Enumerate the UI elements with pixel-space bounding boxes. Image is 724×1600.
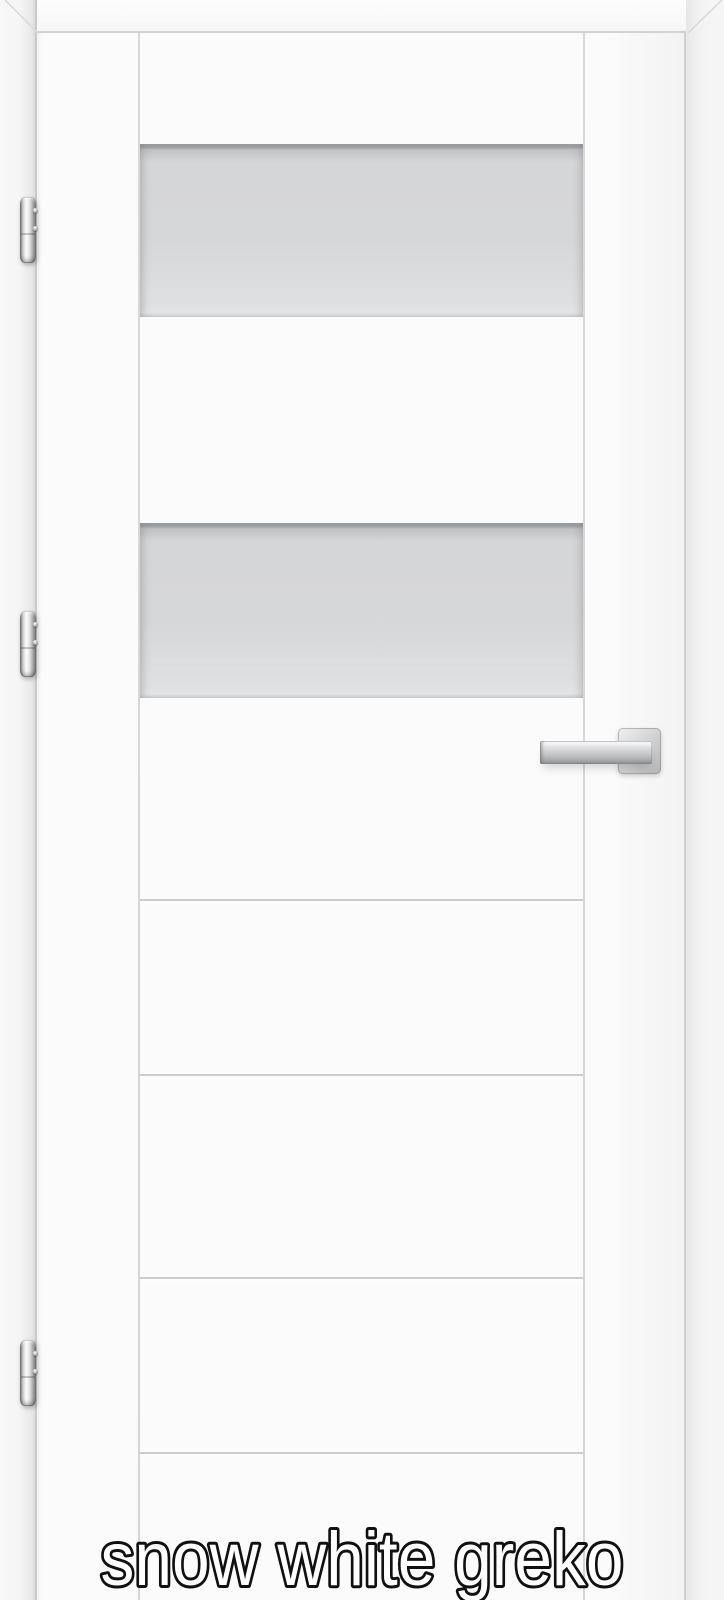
panel-groove-line bbox=[140, 1277, 583, 1279]
hinge-screw-knob bbox=[33, 1351, 38, 1356]
hinge-middle bbox=[20, 611, 36, 677]
hinge-top bbox=[20, 197, 36, 263]
hinge-screw-knob bbox=[33, 622, 38, 627]
caption-text: snow white greko bbox=[101, 1517, 624, 1600]
product-photo-door: { "caption": { "text": "snow white greko… bbox=[0, 0, 724, 1600]
glass-panel-top bbox=[140, 144, 583, 317]
wall-right-strip bbox=[686, 0, 724, 1600]
door-leaf bbox=[38, 33, 686, 1600]
hinge-screw-knob bbox=[33, 640, 38, 645]
hinge-seam bbox=[21, 647, 35, 649]
hinge-screw-knob bbox=[33, 208, 38, 213]
caption: snow white greko bbox=[0, 1455, 724, 1600]
door-handle-lever bbox=[540, 741, 652, 764]
panel-groove-line bbox=[140, 899, 583, 901]
stile-groove-right bbox=[583, 33, 585, 1600]
hinge-screw-knob bbox=[33, 226, 38, 231]
hinge-screw-knob bbox=[33, 1369, 38, 1374]
glass-panel-bottom bbox=[140, 523, 583, 698]
hinge-seam bbox=[21, 1376, 35, 1378]
panel-groove-line bbox=[140, 1452, 583, 1454]
panel-groove-line bbox=[140, 1074, 583, 1076]
hinge-bottom bbox=[20, 1340, 36, 1406]
hinge-seam bbox=[21, 233, 35, 235]
